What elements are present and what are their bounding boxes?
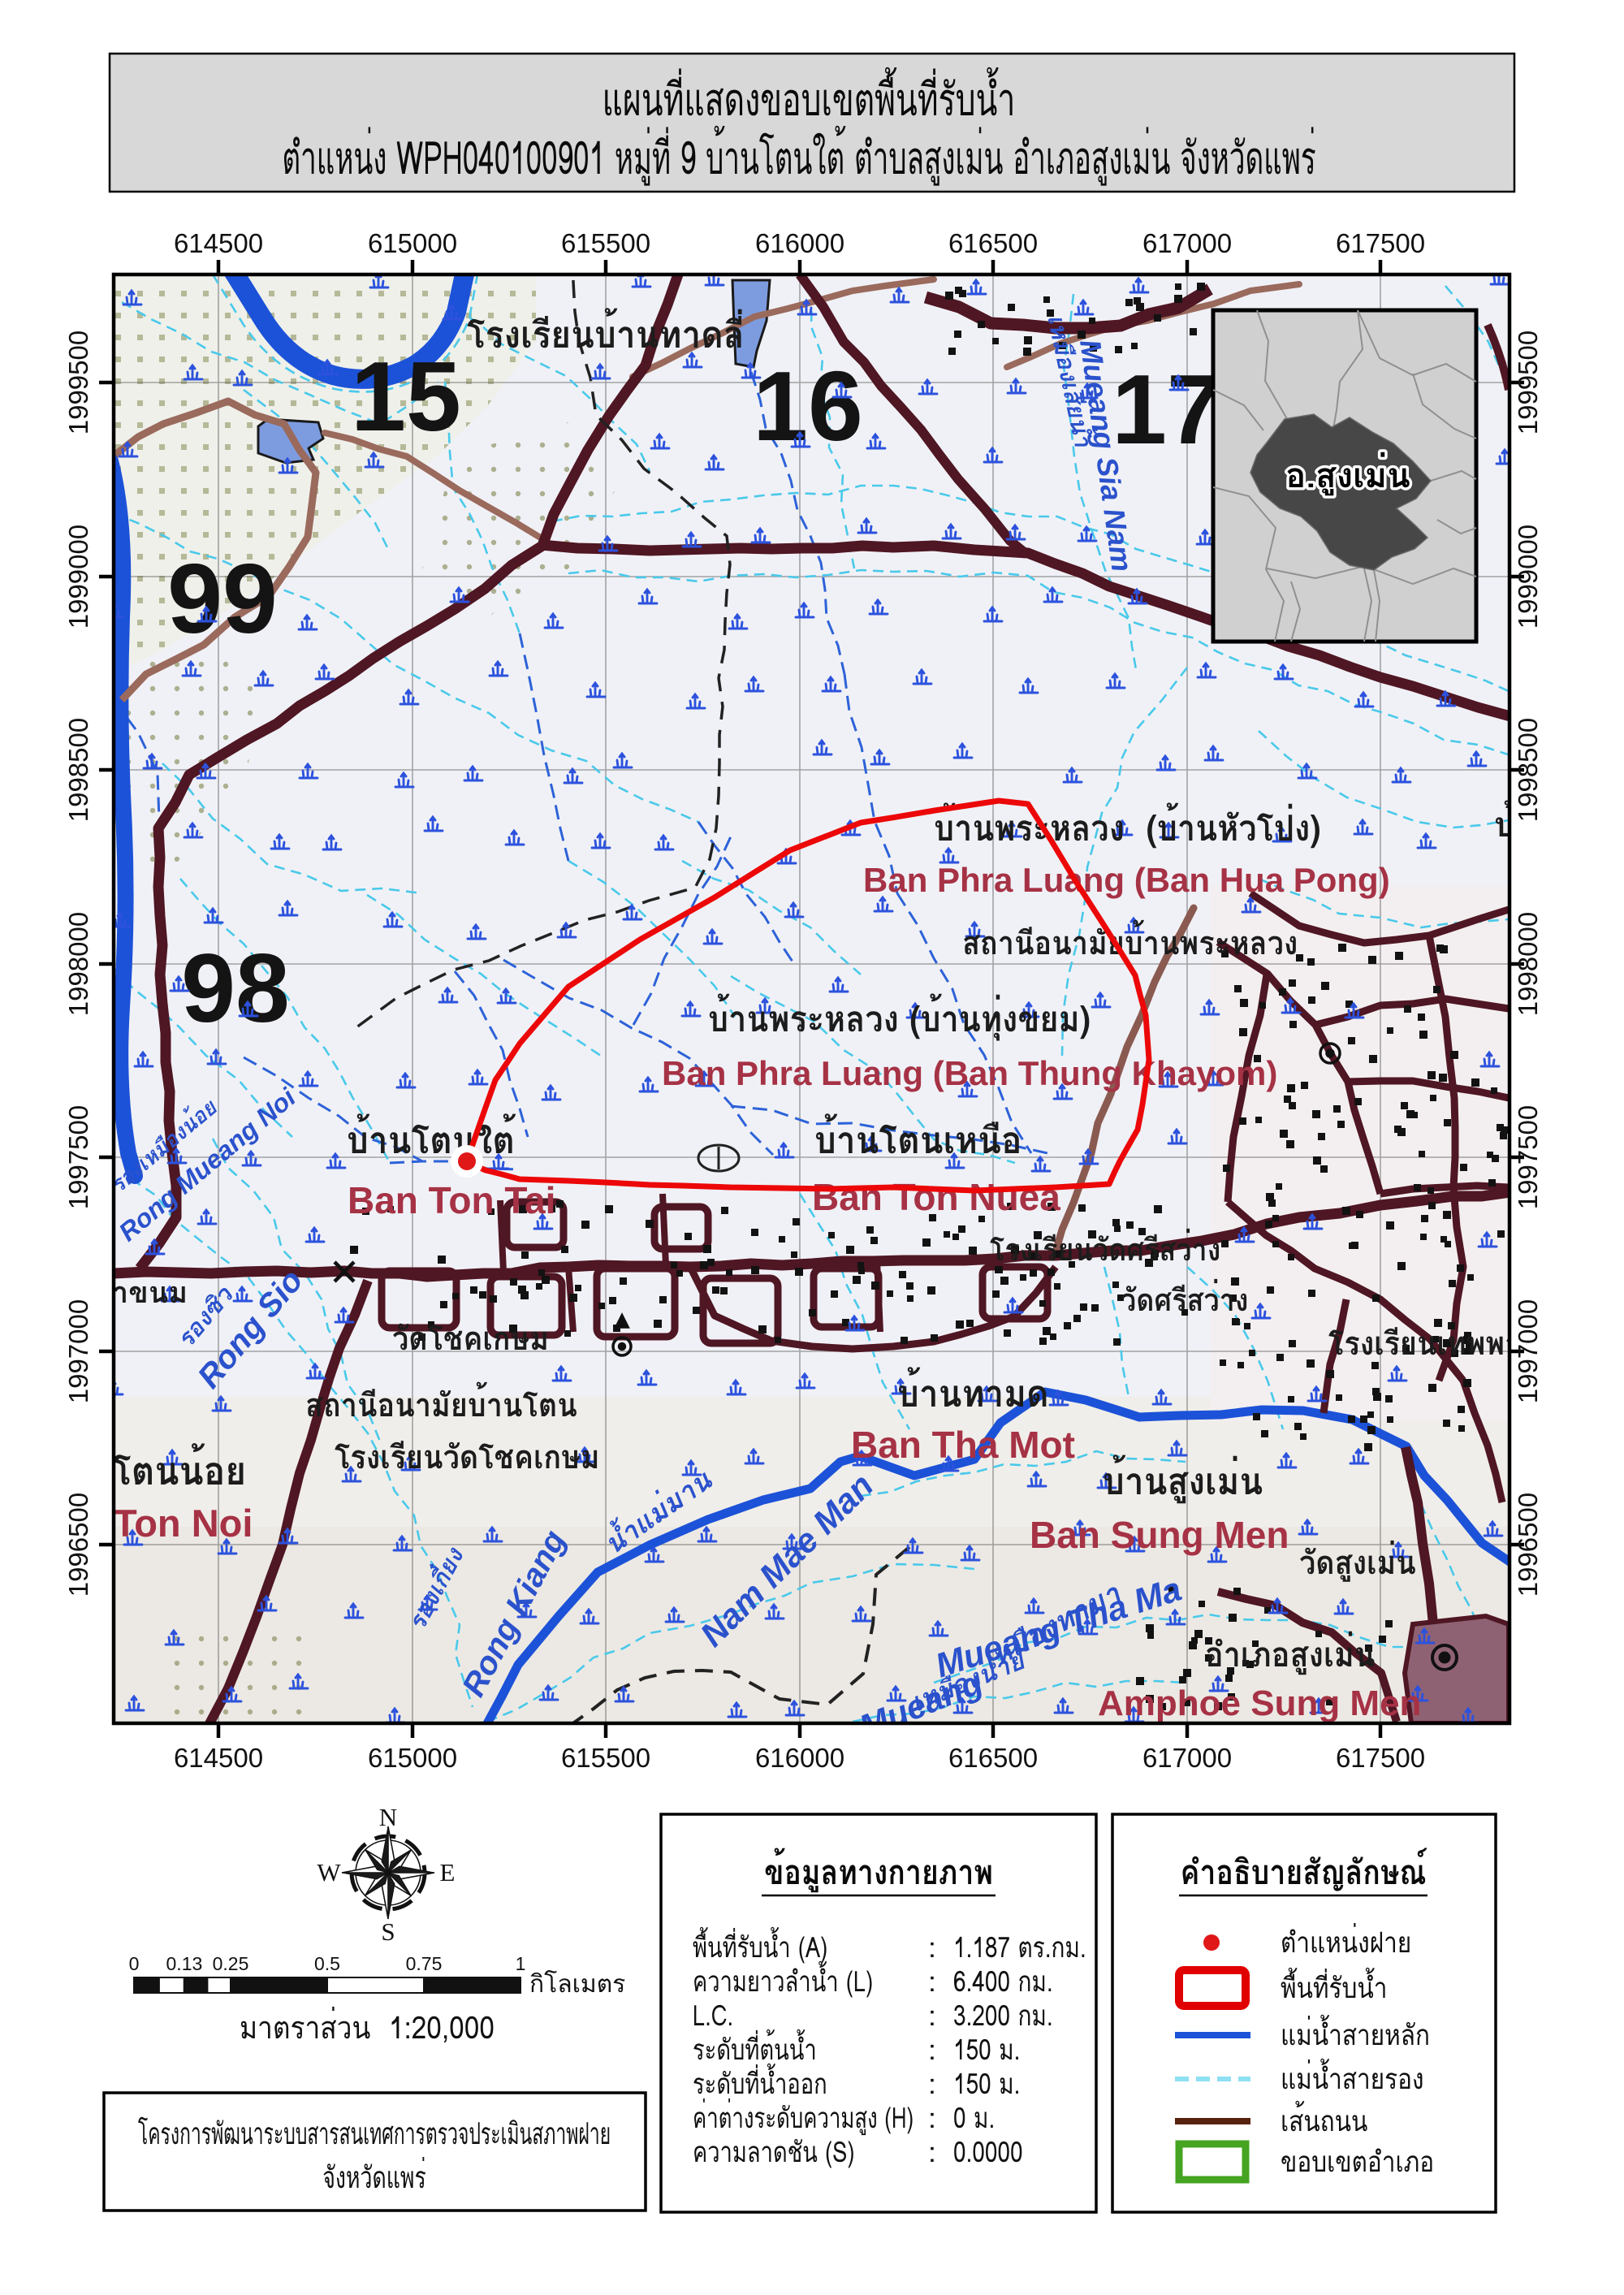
svg-text:99: 99 [167, 543, 278, 654]
svg-text:617000: 617000 [1142, 228, 1232, 258]
svg-text:0.13: 0.13 [166, 1953, 203, 1974]
svg-text:615500: 615500 [561, 1743, 650, 1773]
svg-text:615000: 615000 [368, 228, 457, 258]
svg-text:15: 15 [351, 341, 461, 452]
svg-text:Ton Noi: Ton Noi [114, 1502, 253, 1545]
svg-text:1999500: 1999500 [63, 331, 93, 434]
svg-text:617500: 617500 [1336, 228, 1425, 258]
svg-text:616500: 616500 [948, 228, 1038, 258]
svg-text:16: 16 [753, 351, 863, 461]
svg-text:1998500: 1998500 [1513, 718, 1543, 822]
svg-text:1996500: 1996500 [63, 1493, 93, 1597]
svg-text:Ban Sung Men: Ban Sung Men [1030, 1514, 1289, 1556]
svg-text:Ban Ton Nuea: Ban Ton Nuea [812, 1176, 1060, 1218]
svg-text:W: W [317, 1858, 341, 1887]
svg-text:616000: 616000 [755, 1743, 844, 1773]
svg-text:98: 98 [181, 934, 289, 1043]
svg-text:0.25: 0.25 [213, 1953, 249, 1974]
svg-text:614500: 614500 [174, 1743, 263, 1773]
svg-text:0.75: 0.75 [406, 1953, 443, 1974]
svg-text:N: N [379, 1803, 397, 1831]
svg-text:1999000: 1999000 [63, 525, 93, 629]
svg-text:1997000: 1997000 [1513, 1299, 1543, 1403]
svg-text:1: 1 [516, 1953, 526, 1974]
svg-text:614500: 614500 [174, 228, 263, 258]
svg-text:1997500: 1997500 [1513, 1105, 1543, 1209]
svg-text:0.5: 0.5 [314, 1953, 340, 1974]
svg-text:617000: 617000 [1142, 1743, 1232, 1773]
svg-text:615000: 615000 [368, 1743, 457, 1773]
svg-text:S: S [381, 1917, 395, 1946]
svg-text:1997500: 1997500 [63, 1105, 93, 1209]
svg-text:1998500: 1998500 [63, 718, 93, 822]
svg-text:Ban Ton Tai: Ban Ton Tai [348, 1179, 555, 1221]
svg-text:1999500: 1999500 [1513, 331, 1543, 434]
svg-text:Ban Phra Luang (Ban Hua Pong): Ban Phra Luang (Ban Hua Pong) [863, 861, 1390, 899]
svg-text:1998000: 1998000 [63, 912, 93, 1016]
svg-text:Ban Tha Mot: Ban Tha Mot [851, 1424, 1075, 1466]
svg-text:617500: 617500 [1336, 1743, 1425, 1773]
svg-text:1996500: 1996500 [1513, 1493, 1543, 1597]
svg-text:Amphoe Sung Men: Amphoe Sung Men [1098, 1683, 1421, 1723]
svg-text:0: 0 [129, 1953, 140, 1974]
svg-text:616000: 616000 [755, 228, 844, 258]
svg-text:1997000: 1997000 [63, 1299, 93, 1403]
svg-text:17: 17 [1112, 354, 1222, 465]
svg-text:1999000: 1999000 [1513, 525, 1543, 629]
svg-text:Ban Phra Luang (Ban Thung Khay: Ban Phra Luang (Ban Thung Khayom) [662, 1054, 1277, 1092]
svg-text:1998000: 1998000 [1513, 912, 1543, 1016]
svg-text:615500: 615500 [561, 228, 650, 258]
svg-text:E: E [440, 1858, 456, 1887]
svg-text:616500: 616500 [948, 1743, 1038, 1773]
